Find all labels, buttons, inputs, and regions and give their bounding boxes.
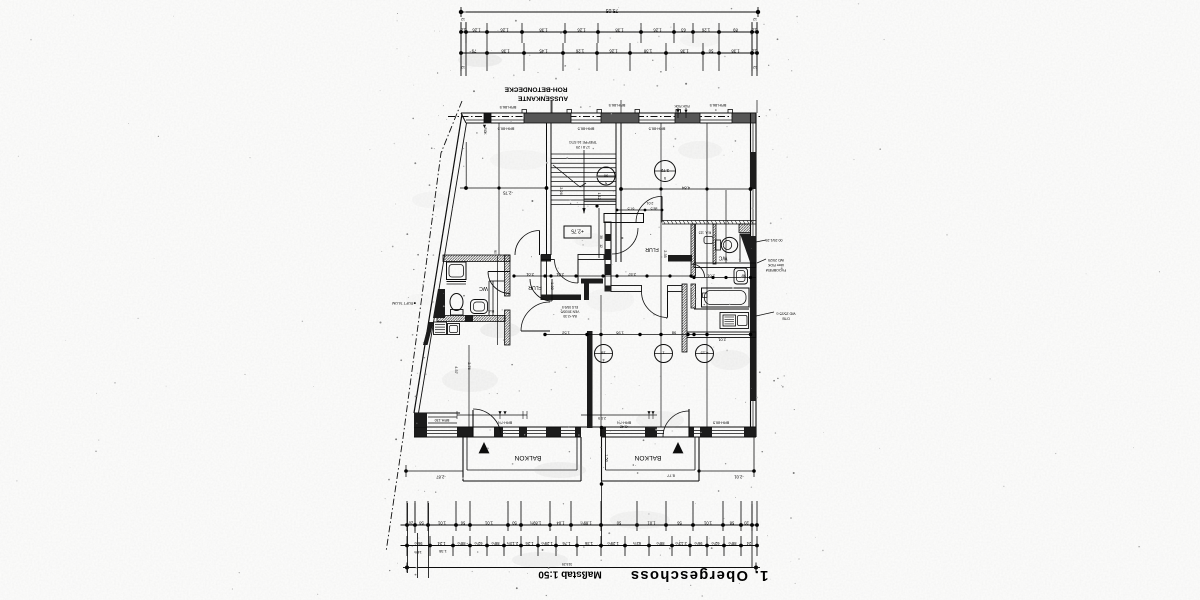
svg-text:-5.42: -5.42 — [620, 425, 628, 429]
svg-text:1.26: 1.26 — [577, 28, 586, 33]
svg-text:1.12: 1.12 — [597, 193, 601, 200]
svg-text:20: 20 — [744, 521, 749, 526]
svg-text:DTB: DTB — [782, 317, 790, 321]
svg-text:BRH-130: BRH-130 — [435, 418, 450, 422]
svg-text:1.26: 1.26 — [575, 49, 584, 54]
svg-text:50: 50 — [708, 49, 713, 54]
svg-text:12: 12 — [753, 17, 757, 21]
svg-text:98: 98 — [742, 274, 746, 278]
svg-text:1.38: 1.38 — [539, 28, 548, 33]
svg-text:1.01: 1.01 — [484, 521, 493, 526]
svg-text:1.38: 1.38 — [501, 49, 510, 54]
svg-text:1.50: 1.50 — [605, 454, 609, 461]
svg-text:BRH-86.5: BRH-86.5 — [649, 127, 666, 131]
svg-text:BRH-86.5: BRH-86.5 — [498, 127, 515, 131]
svg-text:1.04: 1.04 — [556, 521, 565, 526]
svg-text:67.5: 67.5 — [628, 207, 635, 211]
svg-text:WD 25/25 ü: WD 25/25 ü — [777, 312, 796, 316]
svg-text:BRH-86.5: BRH-86.5 — [609, 103, 626, 107]
svg-text:62½: 62½ — [632, 541, 641, 546]
svg-text:1.24: 1.24 — [437, 541, 446, 546]
svg-text:ELS 05/9.5: ELS 05/9.5 — [562, 305, 578, 309]
svg-text:WD 25/25: WD 25/25 — [768, 258, 784, 262]
svg-text:1.38: 1.38 — [731, 49, 740, 54]
svg-text:1.26: 1.26 — [500, 28, 509, 33]
svg-text:50: 50 — [512, 521, 517, 526]
svg-text:12: 12 — [461, 17, 465, 21]
svg-text:BRH-86.5: BRH-86.5 — [578, 127, 595, 131]
svg-text:1.29½: 1.29½ — [541, 541, 553, 546]
svg-text:ROK ROK: ROK ROK — [674, 104, 690, 108]
svg-text:FLUR: FLUR — [645, 246, 659, 252]
svg-text:1.01: 1.01 — [703, 521, 712, 526]
svg-text:58: 58 — [419, 521, 424, 526]
svg-text:1.89½: 1.89½ — [529, 521, 541, 526]
svg-text:90: 90 — [493, 250, 497, 254]
svg-text:1.38: 1.38 — [439, 549, 446, 553]
svg-text:TREPPE 16 STG: TREPPE 16 STG — [569, 140, 597, 144]
svg-text:2.01: 2.01 — [706, 274, 715, 279]
svg-text:-2.75: -2.75 — [502, 191, 513, 196]
svg-text:12: 12 — [753, 65, 757, 69]
svg-text:88½: 88½ — [728, 541, 737, 546]
svg-text:2.35: 2.35 — [663, 250, 667, 257]
svg-text:BRH-86.5: BRH-86.5 — [710, 103, 727, 107]
svg-text:1.89½: 1.89½ — [580, 521, 592, 526]
svg-text:BRH-7½: BRH-7½ — [498, 421, 512, 425]
svg-text:98: 98 — [671, 331, 676, 336]
svg-text:96½: 96½ — [414, 541, 423, 546]
svg-text:1.95: 1.95 — [615, 331, 624, 336]
svg-text:1.26: 1.26 — [525, 541, 534, 546]
svg-text:+2.75: +2.75 — [571, 228, 584, 234]
svg-text:56: 56 — [677, 521, 682, 526]
svg-text:3.72: 3.72 — [660, 168, 669, 173]
svg-text:ROK: ROK — [483, 128, 487, 136]
svg-text:2.57: 2.57 — [627, 272, 636, 277]
svg-text:1.26: 1.26 — [701, 28, 710, 33]
svg-text:AUSSENKANTE: AUSSENKANTE — [517, 95, 568, 102]
svg-text:BALKON: BALKON — [514, 454, 541, 461]
svg-text:56: 56 — [460, 521, 465, 526]
svg-text:BALKON: BALKON — [634, 454, 661, 461]
svg-text:VEN 30/30/5: VEN 30/30/5 — [560, 310, 579, 314]
svg-text:96½: 96½ — [694, 541, 703, 546]
svg-text:62½: 62½ — [711, 541, 720, 546]
svg-text:-2.87: -2.87 — [436, 475, 446, 480]
svg-text:00 25/1.25: 00 25/1.25 — [766, 238, 783, 242]
svg-text:2.13½: 2.13½ — [675, 541, 687, 546]
svg-text:1.26: 1.26 — [609, 49, 618, 54]
svg-text:1.01: 1.01 — [437, 521, 446, 526]
svg-text:2.01: 2.01 — [717, 338, 726, 343]
svg-text:1.38: 1.38 — [615, 28, 624, 33]
svg-text:FVOOBREM: FVOOBREM — [766, 268, 787, 272]
svg-text:4.15: 4.15 — [700, 351, 709, 356]
svg-text:2.0 9: 2.0 9 — [598, 416, 606, 420]
svg-text:2.01: 2.01 — [525, 272, 534, 277]
svg-text:58: 58 — [729, 521, 734, 526]
svg-text:18: 18 — [601, 351, 606, 356]
svg-text:WC: WC — [479, 285, 488, 291]
svg-text:1.38: 1.38 — [680, 49, 689, 54]
svg-text:12: 12 — [461, 65, 465, 69]
svg-text:63: 63 — [681, 28, 686, 33]
svg-text:8.77: 8.77 — [666, 474, 675, 479]
svg-text:FLUR: FLUR — [528, 284, 542, 290]
svg-text:1. Obergeschoss: 1. Obergeschoss — [630, 567, 769, 583]
svg-text:1.29½: 1.29½ — [607, 541, 619, 546]
svg-text:2.01: 2.01 — [555, 272, 564, 277]
svg-text:1.45: 1.45 — [539, 49, 548, 54]
svg-text:2.13½: 2.13½ — [506, 541, 518, 546]
svg-text:BA +2.30: BA +2.30 — [563, 314, 577, 318]
svg-text:ROH-BETONDECKE: ROH-BETONDECKE — [504, 86, 567, 93]
svg-text:1.38: 1.38 — [643, 49, 652, 54]
svg-text:M.A. 115: M.A. 115 — [699, 231, 712, 235]
svg-text:17.8 / 29: 17.8 / 29 — [576, 145, 590, 149]
svg-text:1.76: 1.76 — [562, 541, 571, 546]
svg-text:2.26: 2.26 — [559, 187, 563, 194]
svg-text:88½: 88½ — [491, 541, 500, 546]
svg-text:2.01: 2.01 — [647, 201, 654, 205]
svg-text:Maßstab 1:50: Maßstab 1:50 — [538, 569, 602, 580]
svg-text:90: 90 — [603, 174, 608, 179]
svg-text:BRH-86.5: BRH-86.5 — [500, 105, 517, 109]
svg-text:24: 24 — [746, 541, 751, 546]
svg-text:1.36: 1.36 — [584, 541, 593, 546]
svg-text:79: 79 — [471, 49, 476, 54]
svg-text:20: 20 — [408, 521, 413, 526]
svg-text:88½: 88½ — [656, 541, 665, 546]
svg-text:BRH-7½: BRH-7½ — [617, 421, 631, 425]
svg-text:62½: 62½ — [474, 541, 483, 546]
svg-text:BRH-86.5: BRH-86.5 — [713, 421, 729, 425]
svg-text:1.26: 1.26 — [472, 28, 481, 33]
svg-text:88½: 88½ — [457, 541, 466, 546]
svg-text:M.A.: M.A. — [488, 309, 495, 313]
svg-text:4.84: 4.84 — [681, 186, 690, 191]
svg-text:75.05: 75.05 — [606, 7, 619, 13]
svg-text:1.26: 1.26 — [653, 28, 662, 33]
svg-text:89: 89 — [733, 28, 738, 33]
svg-text:1.52: 1.52 — [561, 331, 570, 336]
svg-text:über ROK: über ROK — [767, 263, 784, 267]
svg-text:-2.01: -2.01 — [734, 475, 744, 480]
